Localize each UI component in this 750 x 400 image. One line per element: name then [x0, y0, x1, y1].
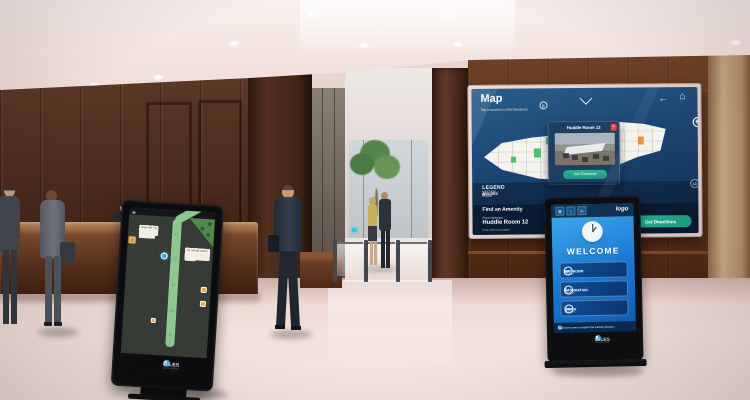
downlight	[152, 74, 164, 81]
person-visitor-left	[0, 184, 26, 332]
skylight	[300, 0, 515, 58]
store-column-right: Lane Crawford Aveda Sun Diego Teaspoon O…	[185, 248, 210, 250]
person-man-dark-suit	[377, 192, 393, 270]
directory-row-information[interactable]: i INFORMATIONTap for directions ↑	[560, 280, 628, 297]
lawn-area	[183, 218, 215, 248]
close-icon[interactable]: ×	[610, 124, 617, 131]
arrow-right-icon: →	[658, 219, 663, 224]
room-photo	[555, 133, 615, 166]
logo-wordmark: logo	[616, 206, 629, 212]
welcome-kiosk-screen: ▦ ⌂ ◎ logo WELCOME WC RESTROOMTap for di…	[551, 203, 636, 333]
welcome-heading: WELCOME	[552, 245, 634, 257]
shadow	[38, 328, 78, 337]
directory-icon[interactable]: ▦	[555, 207, 564, 216]
directory-kiosk-screen: Sole AT&T Sprint GameStop Bath & Body Ca…	[120, 207, 216, 372]
ticker-text: Touch the screen to explore the building…	[558, 325, 615, 329]
lobby-scene: Map Tap a location to Get Directions ♿ ←…	[0, 0, 750, 400]
welcome-kiosk: ▦ ⌂ ◎ logo WELCOME WC RESTROOMTap for di…	[544, 196, 644, 376]
amenity-header: Find an Amenity	[482, 207, 522, 213]
room-selected-sub: from Current Location	[483, 228, 510, 232]
arrow-right-icon: →	[564, 267, 571, 274]
directory-row-restroom[interactable]: WC RESTROOMTap for directions →	[560, 261, 628, 278]
person-woman-gray-suit	[34, 190, 76, 332]
kiosk-base-plate	[545, 359, 647, 368]
ticker-bar: i Touch the screen to explore the buildi…	[554, 321, 636, 333]
downlight	[228, 40, 240, 47]
building-icon[interactable]: ⌂	[566, 206, 575, 215]
page-title: Map	[480, 93, 502, 105]
accessibility-icon[interactable]: ♿	[539, 101, 547, 109]
page-subtitle: Tap a location to Get Directions	[481, 107, 528, 111]
room-cell-occupied[interactable]	[638, 136, 644, 144]
back-arrow-icon[interactable]: ←	[658, 93, 667, 103]
badge-reader-screen	[352, 228, 357, 232]
amenity-marker[interactable]	[200, 301, 206, 307]
brand-tagline: DIGITAL SIGNAGE · WAYFINDING	[163, 364, 179, 371]
person-walking-man	[266, 185, 312, 335]
analog-clock	[582, 221, 603, 242]
popup-get-directions-button[interactable]: Get Directions	[563, 170, 607, 179]
arrow-up-icon: ↑	[564, 286, 568, 293]
room-popup: Huddle Room 12 × Get Directions	[548, 121, 621, 186]
room-cell-available[interactable]	[511, 157, 516, 163]
brand-tagline: DIGITAL SIGNAGE · WAYFINDING	[595, 339, 610, 345]
weather-icon	[132, 211, 135, 214]
you-are-here-marker	[161, 252, 168, 259]
legend-item-label: OCCUPIED	[482, 192, 498, 196]
mall-directory-map[interactable]: Sole AT&T Sprint GameStop Bath & Body Ca…	[121, 214, 215, 358]
amenity-marker[interactable]	[151, 318, 156, 323]
downlight	[452, 41, 464, 48]
downlight	[443, 12, 455, 19]
room-cell-available[interactable]	[534, 148, 541, 157]
directory-row-dining[interactable]: Ψ DININGTap for directions ↓	[560, 299, 628, 316]
downlight	[305, 11, 317, 18]
store-block[interactable]: Flow	[139, 225, 149, 237]
handbag	[60, 242, 75, 263]
level-button-l3[interactable]: L3	[690, 179, 698, 188]
directory-kiosk: Sole AT&T Sprint GameStop Bath & Body Ca…	[110, 200, 228, 400]
room-selected-name: Huddle Room 12	[483, 219, 529, 225]
downlight	[730, 39, 742, 46]
downlight	[358, 42, 370, 49]
arrow-down-icon: ↓	[564, 305, 568, 312]
store-column-left: Sole AT&T Sprint GameStop Bath & Body Ca…	[140, 225, 171, 227]
floor-light-reflection	[328, 280, 452, 375]
home-icon[interactable]: ⌂	[679, 91, 685, 102]
amenity-marker[interactable]	[201, 287, 207, 293]
chevron-down-icon[interactable]	[580, 92, 593, 105]
map-icon[interactable]: ◎	[577, 206, 586, 215]
folder	[268, 235, 279, 252]
filter-icon-active[interactable]	[128, 236, 135, 243]
locate-icon[interactable]: ◉	[693, 117, 699, 127]
store-block[interactable]: La Strada	[185, 248, 201, 257]
popup-title: Huddle Room 12	[549, 125, 619, 131]
